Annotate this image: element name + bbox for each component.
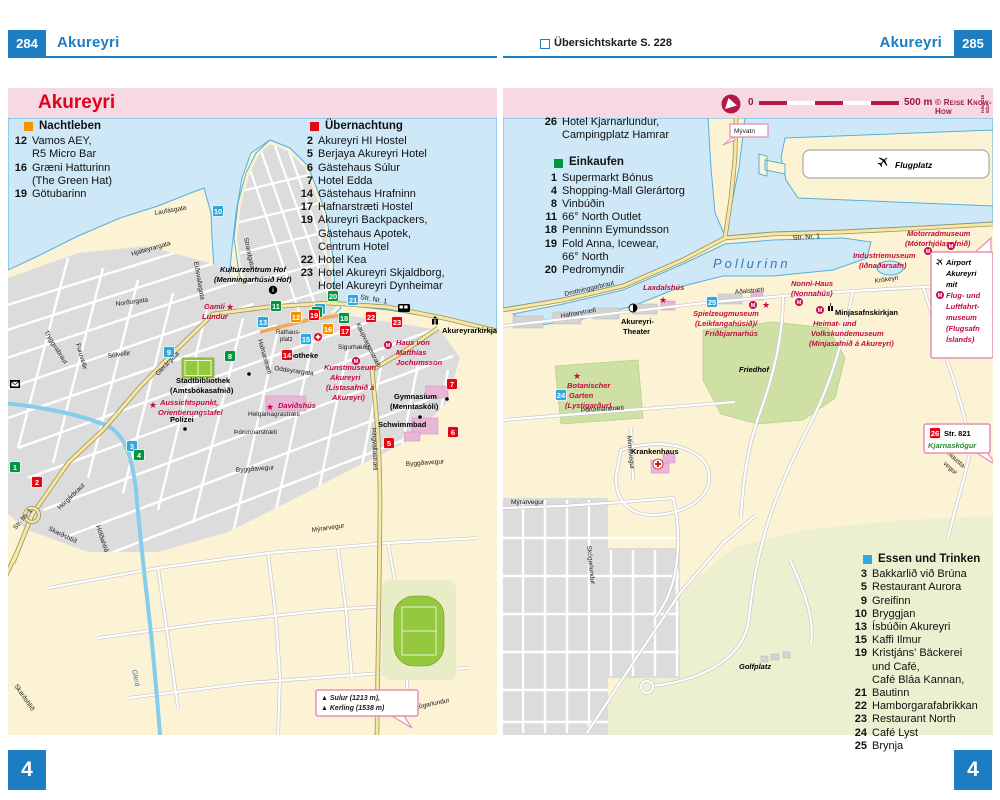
- legend-item-text: Restaurant North: [872, 713, 956, 726]
- museum-icon: M: [384, 341, 392, 349]
- legend-item-number: 20: [540, 264, 557, 277]
- legend-item: 9 Greifinn: [850, 595, 1000, 608]
- scale-label: 500 m: [904, 97, 932, 108]
- right-title-bar: 0 500 m © Reise Know-How Island186/24: [503, 88, 993, 118]
- legend-item-text: Gästehaus Hrafninn: [318, 188, 416, 201]
- legend-item: 15 Kaffi Ilmur: [850, 634, 1000, 647]
- legend-item: 23 Hotel Akureyri Skjaldborg,Hotel Akure…: [296, 267, 501, 293]
- poi-label: Polizei: [170, 415, 194, 424]
- poi-label: (Mótorhjólasafnið): [905, 239, 971, 248]
- map-badge-26: 26: [930, 428, 941, 439]
- legend-item: 4 Shopping-Mall Glerártorg: [540, 185, 775, 198]
- poi-label: Flugplatz: [895, 160, 933, 170]
- legend-item: 19 Fold Anna, Icewear,66° North: [540, 238, 775, 264]
- dining-square-icon: [863, 555, 872, 564]
- legend-item: 22 Hotel Kea: [296, 254, 501, 267]
- right-page: Übersichtskarte S. 228 Akureyri 285 0 50…: [500, 0, 1000, 800]
- svg-text:17: 17: [341, 327, 349, 336]
- legend-item-number: 3: [850, 568, 867, 581]
- legend-item-text: Café Lyst: [872, 727, 918, 740]
- svg-text:26: 26: [931, 429, 939, 438]
- legend-item-number: 25: [850, 740, 867, 753]
- map-badge-6: 6: [448, 427, 459, 438]
- poi-label: Schwimmbad: [378, 420, 427, 429]
- pharmacy-icon: [314, 333, 322, 341]
- museum-icon: M: [936, 291, 944, 299]
- poi-label: Akureyri-: [621, 317, 654, 326]
- poi-label: Friðbjarnarhús: [705, 329, 758, 338]
- legend-item-number: 13: [850, 621, 867, 634]
- legend-item-text: Kaffi Ilmur: [872, 634, 921, 647]
- legend-item-number: 12: [10, 135, 27, 161]
- legend-item: 23 Restaurant North: [850, 713, 1000, 726]
- svg-text:Luftfahrt-: Luftfahrt-: [946, 302, 980, 311]
- museum-icon: M: [947, 242, 955, 250]
- legend-item: 13 Ísbúðin Akureyri: [850, 621, 1000, 634]
- street-label: Þingvallastræti: [370, 428, 378, 471]
- legend-nightlife: Nachtleben 12 Vamos AEY,R5 Micro Bar 16 …: [10, 118, 180, 201]
- legend-title: Nachtleben: [39, 120, 101, 133]
- legend-item-number: 2: [296, 135, 313, 148]
- map-badge-16: 16: [323, 324, 334, 335]
- legend-title: Übernachtung: [325, 120, 403, 133]
- legend-item-text: Hotel Kjarnarlundur,Campingplatz Hamrar: [562, 116, 669, 142]
- map-badge-10: 10: [213, 206, 224, 217]
- svg-text:Airport: Airport: [945, 258, 972, 267]
- hospital-icon: [653, 459, 663, 469]
- poi-label: Aussichtspunkt,: [159, 398, 218, 407]
- star-icon: ★: [149, 400, 157, 410]
- legend-item: 18 Penninn Eymundsson: [540, 224, 775, 237]
- map-badge-17: 17: [340, 326, 351, 337]
- map-badge-22: 22: [366, 312, 377, 323]
- map-title: Akureyri: [38, 92, 115, 114]
- map-badge-12: 12: [291, 312, 302, 323]
- museum-icon: M: [749, 301, 757, 309]
- legend-item-text: Supermarkt Bónus: [562, 172, 653, 185]
- overview-map-icon: [540, 39, 550, 49]
- map-badge-25: 25: [707, 297, 718, 308]
- poi-label: (Lystigarður): [565, 401, 612, 410]
- legend-item-number: 21: [850, 687, 867, 700]
- legend-item-number: 23: [296, 267, 313, 293]
- legend-item-number: 24: [850, 727, 867, 740]
- map-badge-5: 5: [384, 438, 395, 449]
- legend-item: 14 Gästehaus Hrafninn: [296, 188, 501, 201]
- legend-item-number: 26: [540, 116, 557, 142]
- shopping-square-icon: [554, 159, 563, 168]
- poi-label: Friedhof: [739, 365, 770, 374]
- legend-item-text: Hotel Edda: [318, 175, 372, 188]
- legend-item-text: Hamborgarafabrikkan: [872, 700, 978, 713]
- svg-text:M: M: [354, 359, 359, 365]
- airport-info-box: Airport Akureyri mit M Flug- und Luftfah…: [931, 238, 993, 358]
- legend-item-text: Berjaya Akureyri Hotel: [318, 148, 427, 161]
- legend-item-number: 1: [540, 172, 557, 185]
- left-title-bar: Akureyri: [8, 88, 497, 118]
- star-icon: ★: [266, 402, 274, 412]
- poi-label: Garten: [569, 391, 594, 400]
- left-chapter-tab: 4: [8, 750, 46, 790]
- svg-text:M: M: [938, 293, 943, 299]
- legend-item-number: 4: [540, 185, 557, 198]
- poi-label: Heimat- und: [813, 319, 857, 328]
- poi-label: (Minjasafnið á Akureyri): [809, 339, 894, 348]
- legend-item: 19 Götubarinn: [10, 188, 180, 201]
- legend-item: 1 Supermarkt Bónus: [540, 172, 775, 185]
- legend-item: 8 Vinbúðin: [540, 198, 775, 211]
- svg-text:Íslands): Íslands): [946, 335, 975, 344]
- poi-label: Spielzeugmuseum: [693, 309, 759, 318]
- svg-text:M: M: [751, 303, 756, 309]
- post-icon: [10, 380, 20, 388]
- svg-text:21: 21: [349, 296, 357, 305]
- bus-icon: [398, 304, 410, 312]
- svg-text:M: M: [926, 249, 931, 255]
- legend-item-text: Penninn Eymundsson: [562, 224, 669, 237]
- legend-item-text: Akureyri HI Hostel: [318, 135, 407, 148]
- svg-text:Akureyri: Akureyri: [945, 269, 977, 278]
- poi-label: Volkskundemuseum: [811, 329, 884, 338]
- map-badge-24: 24: [556, 390, 567, 401]
- poi-label: Gamli: [204, 302, 226, 311]
- poi-label: Gymnasium: [394, 392, 437, 401]
- legend-item-number: 14: [296, 188, 313, 201]
- poi-label: Laxdalshús: [643, 283, 684, 292]
- poi-label: Theater: [623, 327, 650, 336]
- legend-item: 3 Bakkarlið við Brúna: [850, 568, 1000, 581]
- legend-item-text: Vinbúðin: [562, 198, 605, 211]
- left-page-number: 284: [8, 30, 46, 56]
- legend-title: Einkaufen: [569, 156, 624, 169]
- svg-text:11: 11: [272, 302, 280, 311]
- legend-item-text: Hafnarstræti Hostel: [318, 201, 413, 214]
- legend-item-number: 16: [10, 162, 27, 188]
- legend-item: 6 Gästehaus Súlur: [296, 162, 501, 175]
- svg-text:mit: mit: [946, 280, 958, 289]
- poi-label: Kunstmuseum: [324, 363, 376, 372]
- star-icon: ★: [762, 300, 770, 310]
- svg-text:Str. 821: Str. 821: [944, 429, 971, 438]
- edition-note: Island186/24: [980, 89, 990, 113]
- legend-item: 11 66° North Outlet: [540, 211, 775, 224]
- legend-item-number: 19: [296, 214, 313, 254]
- scale-bar: [759, 101, 899, 105]
- legend-item-number: 10: [850, 608, 867, 621]
- svg-text:22: 22: [367, 313, 375, 322]
- map-badge-18: 18: [339, 313, 350, 324]
- svg-text:museum: museum: [946, 313, 977, 322]
- legend-item: 19 Akureyri Backpackers,Gästehaus Apotek…: [296, 214, 501, 254]
- poi-label: Industriemuseum: [853, 251, 916, 260]
- svg-text:2: 2: [35, 478, 39, 487]
- legend-dining: Essen und Trinken 3 Bakkarlið við Brúna …: [850, 551, 1000, 753]
- map-badge-21: 21: [348, 295, 359, 306]
- legend-item-text: Akureyri Backpackers,Gästehaus Apotek,Ce…: [318, 214, 427, 254]
- svg-text:M: M: [818, 308, 823, 314]
- legend-item-text: Fold Anna, Icewear,66° North: [562, 238, 659, 264]
- svg-text:18: 18: [340, 314, 348, 323]
- poi-dot: [418, 415, 422, 419]
- legend-item-number: 15: [850, 634, 867, 647]
- svg-text:9: 9: [167, 348, 171, 357]
- map-badge-2: 2: [32, 477, 43, 488]
- poi-label: Akureyri): [331, 393, 365, 402]
- legend-item-text: 66° North Outlet: [562, 211, 641, 224]
- legend-item-number: 9: [850, 595, 867, 608]
- poi-label: Matthías: [396, 348, 426, 357]
- legend-item-text: Kristjáns' Bäckereiund Café,Café Bláa Ka…: [872, 647, 964, 687]
- legend-item: 2 Akureyri HI Hostel: [296, 135, 501, 148]
- legend-item-number: 17: [296, 201, 313, 214]
- legend-item: 24 Café Lyst: [850, 727, 1000, 740]
- svg-text:25: 25: [708, 298, 716, 307]
- legend-item-number: 11: [540, 211, 557, 224]
- svg-text:Kjarnaskógur: Kjarnaskógur: [928, 441, 977, 450]
- poi-label: (Iðnaðarsafn): [859, 261, 907, 270]
- legend-item-number: 22: [296, 254, 313, 267]
- right-chapter-tab: 4: [954, 750, 992, 790]
- info-icon: i: [269, 286, 277, 294]
- legend-item-text: Gästehaus Súlur: [318, 162, 400, 175]
- museum-icon: M: [816, 306, 824, 314]
- map-badge-9: 9: [164, 347, 175, 358]
- map-badge-11: 11: [271, 301, 282, 312]
- svg-text:▲ Sulur (1213 m),: ▲ Sulur (1213 m),: [321, 695, 380, 702]
- svg-text:16: 16: [324, 325, 332, 334]
- poi-label: Minjasafnskirkjan: [835, 308, 898, 317]
- svg-text:M: M: [797, 300, 802, 306]
- star-icon: ★: [226, 302, 234, 312]
- legend-item-number: 5: [296, 148, 313, 161]
- map-badge-15: 15: [301, 334, 312, 345]
- svg-text:1: 1: [13, 463, 17, 472]
- legend-item-text: Restaurant Aurora: [872, 581, 961, 594]
- poi-label: Golfplatz: [739, 662, 771, 671]
- museum-icon: M: [352, 357, 360, 365]
- svg-text:Flug- und: Flug- und: [946, 291, 981, 300]
- street-label: Rathaus-: [276, 330, 300, 336]
- map-badge-23: 23: [392, 317, 403, 328]
- poi-label: Kulturzentrum Hof: [220, 265, 287, 274]
- right-page-number: 285: [954, 30, 992, 56]
- right-header-title: Akureyri: [880, 34, 942, 51]
- street-label: Þórunnarstræti: [234, 429, 277, 436]
- map-badge-4: 4: [134, 450, 145, 461]
- legend-item-text: Bautinn: [872, 687, 909, 700]
- lodging-square-icon: [310, 122, 319, 131]
- street-label: Mýrarvegur: [511, 499, 545, 506]
- svg-text:24: 24: [557, 391, 566, 400]
- legend-item-number: 6: [296, 162, 313, 175]
- map-badge-7: 7: [447, 379, 458, 390]
- poi-label: Akureyri: [329, 373, 361, 382]
- museum-icon: M: [795, 298, 803, 306]
- svg-text:3: 3: [130, 442, 134, 451]
- legend-item-text: Brynja: [872, 740, 903, 753]
- overview-map-ref: Übersichtskarte S. 228: [554, 37, 672, 49]
- map-badge-8: 8: [225, 351, 236, 362]
- star-icon: ★: [573, 371, 581, 381]
- legend-item: 10 Bryggjan: [850, 608, 1000, 621]
- legend-item-text: Götubarinn: [32, 188, 86, 201]
- street-label: platz: [280, 337, 293, 343]
- legend-item-text: Greifinn: [872, 595, 911, 608]
- legend-item: 5 Berjaya Akureyri Hotel: [296, 148, 501, 161]
- poi-label: Jochumsson: [396, 358, 443, 367]
- poi-label: Krankenhaus: [631, 447, 679, 456]
- poi-label: Nonni-Haus: [791, 279, 833, 288]
- left-header-rule: [8, 56, 497, 58]
- svg-text:5: 5: [387, 439, 391, 448]
- poi-label: (Menningarhúsið Hof): [214, 275, 292, 284]
- map-badge-13: 13: [258, 317, 269, 328]
- legend-item-number: 18: [540, 224, 557, 237]
- svg-text:8: 8: [228, 352, 232, 361]
- compass-icon: [720, 93, 742, 115]
- poi-label: Lundur: [202, 312, 229, 321]
- scale-zero: 0: [748, 97, 754, 108]
- poi-label: Stadtbibliothek: [176, 376, 231, 385]
- svg-text:10: 10: [214, 207, 222, 216]
- legend-item-number: 7: [296, 175, 313, 188]
- legend-item: 22 Hamborgarafabrikkan: [850, 700, 1000, 713]
- svg-text:12: 12: [292, 313, 300, 322]
- poi-dot: [445, 397, 449, 401]
- poi-label: Akureyrarkirkja: [442, 326, 497, 335]
- poi-label: Haus von: [396, 338, 430, 347]
- map-badge-1: 1: [10, 462, 21, 473]
- svg-text:(Flugsafn: (Flugsafn: [946, 324, 980, 333]
- poi-label: (Listasafnið á: [326, 383, 374, 392]
- legend-item-number: 19: [850, 647, 867, 687]
- left-page: 284 Akureyri Akureyri: [0, 0, 500, 800]
- poi-label: Botanischer: [567, 381, 611, 390]
- legend-item-text: Vamos AEY,R5 Micro Bar: [32, 135, 96, 161]
- legend-item: 17 Hafnarstræti Hostel: [296, 201, 501, 214]
- svg-text:6: 6: [451, 428, 455, 437]
- legend-lodging-continued: 26 Hotel Kjarnarlundur,Campingplatz Hamr…: [540, 116, 775, 277]
- svg-text:13: 13: [259, 318, 267, 327]
- svg-text:14: 14: [283, 351, 292, 360]
- legend-item-text: Bryggjan: [872, 608, 915, 621]
- legend-item: 12 Vamos AEY,R5 Micro Bar: [10, 135, 180, 161]
- street-label: Helgamagrastræti: [248, 411, 300, 418]
- poi-label: Davíðshús: [278, 401, 316, 410]
- legend-item: 20 Pedromyndir: [540, 264, 775, 277]
- poi-label: (Amtsbókasafnið): [170, 386, 234, 395]
- legend-item: 16 Græni Hatturinn(The Green Hat): [10, 162, 180, 188]
- legend-item-number: 8: [540, 198, 557, 211]
- legend-item-number: 19: [10, 188, 27, 201]
- legend-item-number: 23: [850, 713, 867, 726]
- poi-dot: [247, 372, 251, 376]
- left-header-title: Akureyri: [57, 34, 119, 51]
- right-header-rule: [503, 56, 992, 58]
- legend-item: 21 Bautinn: [850, 687, 1000, 700]
- poi-label: (Nonnahús): [791, 289, 833, 298]
- legend-item-text: Græni Hatturinn(The Green Hat): [32, 162, 112, 188]
- legend-lodging: Übernachtung 2 Akureyri HI Hostel 5 Berj…: [296, 118, 501, 294]
- legend-item-number: 19: [540, 238, 557, 264]
- poi-label: Sigurhæðir: [338, 343, 371, 351]
- legend-item-text: Bakkarlið við Brúna: [872, 568, 967, 581]
- svg-text:M: M: [949, 244, 954, 250]
- legend-item-text: Pedromyndir: [562, 264, 624, 277]
- svg-text:15: 15: [302, 335, 310, 344]
- theater-icon: [629, 304, 637, 312]
- legend-title: Essen und Trinken: [878, 553, 980, 566]
- svg-text:19: 19: [310, 311, 318, 320]
- legend-item: 7 Hotel Edda: [296, 175, 501, 188]
- legend-item-text: Hotel Kea: [318, 254, 366, 267]
- legend-item-text: Shopping-Mall Glerártorg: [562, 185, 685, 198]
- legend-item: 5 Restaurant Aurora: [850, 581, 1000, 594]
- legend-item-number: 22: [850, 700, 867, 713]
- legend-item: 26 Hotel Kjarnarlundur,Campingplatz Hamr…: [540, 116, 775, 142]
- poi-dot: [183, 427, 187, 431]
- svg-text:▲ Kerling (1538 m): ▲ Kerling (1538 m): [321, 705, 385, 712]
- legend-item-number: 5: [850, 581, 867, 594]
- nightlife-square-icon: [24, 122, 33, 131]
- svg-text:M: M: [386, 343, 391, 349]
- legend-item-text: Ísbúðin Akureyri: [872, 621, 950, 634]
- svg-text:23: 23: [393, 318, 401, 327]
- legend-item: 19 Kristjáns' Bäckereiund Café,Café Bláa…: [850, 647, 1000, 687]
- svg-text:7: 7: [450, 380, 454, 389]
- star-icon: ★: [659, 295, 667, 305]
- poi-label: (Menntaskóli): [390, 402, 439, 411]
- poi-label: (Leikfangahúsið)/: [695, 319, 758, 328]
- legend-item-text: Hotel Akureyri Skjaldborg,Hotel Akureyri…: [318, 267, 445, 293]
- map-badge-14: 14: [282, 350, 293, 361]
- poi-label: Motorradmuseum: [907, 229, 971, 238]
